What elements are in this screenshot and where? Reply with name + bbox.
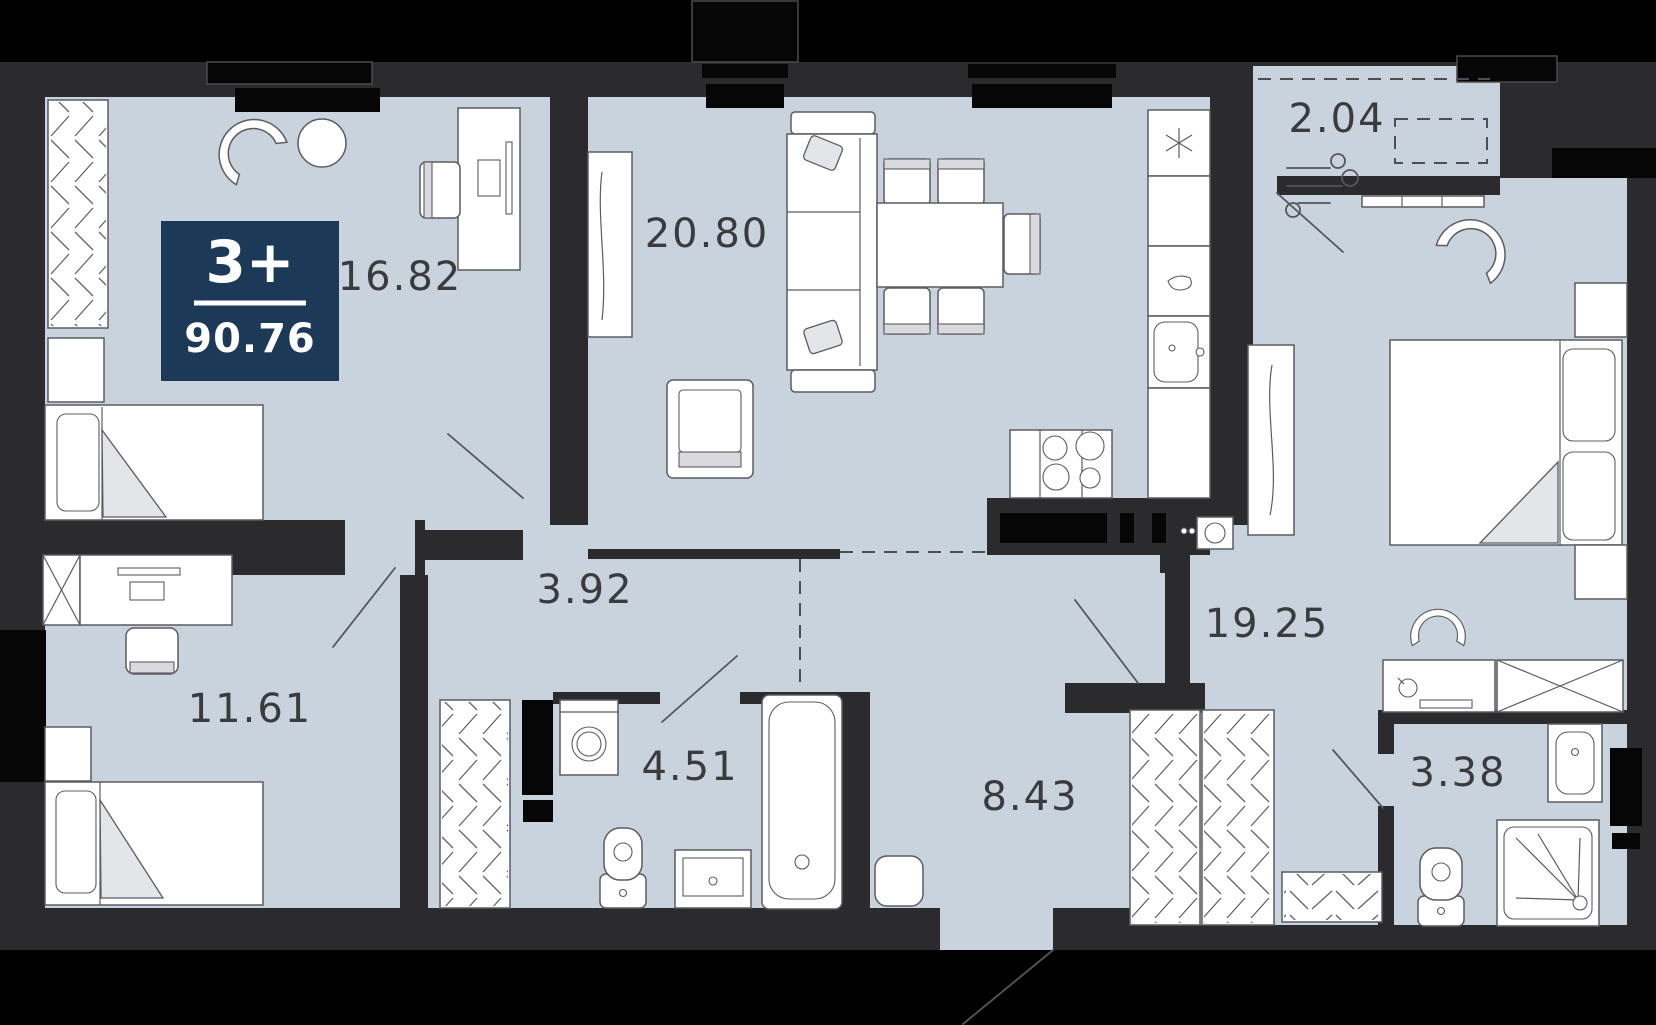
- stove-icon: [1010, 430, 1112, 498]
- room-area-label: 8.43: [981, 774, 1078, 820]
- closet-duct-a: [522, 700, 553, 795]
- closet-duct-b: [523, 800, 553, 822]
- shoe-rack-icon: [1282, 872, 1382, 922]
- desk-icon: [1383, 660, 1495, 712]
- window-living-a: [702, 64, 788, 78]
- room-area-label: 2.04: [1288, 96, 1385, 142]
- wardrobe-icon: [1130, 710, 1200, 925]
- vent-shaft-top: [692, 1, 798, 62]
- wardrobe-icon: [48, 100, 108, 328]
- vent-shaft-right-a: [1610, 748, 1642, 826]
- badge-total-area: 90.76: [184, 316, 316, 362]
- bed-icon: [45, 782, 263, 905]
- nightstand-icon: [45, 727, 91, 781]
- double-bed-icon: [1390, 340, 1622, 545]
- apartment-type-badge: 3+ 90.76: [161, 221, 339, 381]
- cabinet-x-icon: [43, 555, 80, 625]
- bed-icon: [45, 405, 263, 520]
- kitchen-sink-icon: [1148, 316, 1210, 388]
- room-area-label: 19.25: [1205, 601, 1330, 647]
- nightstand-icon: [1575, 283, 1627, 337]
- room-area-label: 11.61: [188, 686, 313, 732]
- window-room1-outer: [207, 62, 372, 84]
- room-area-label: 16.82: [338, 254, 463, 300]
- wall-shower-room-left-a: [1378, 724, 1394, 754]
- toilet-icon: [1418, 848, 1464, 926]
- kitchen-cabinet: [1148, 176, 1210, 246]
- vent-shaft-right-b: [1612, 833, 1640, 849]
- badge-rooms-label: 3+: [206, 228, 295, 296]
- bathtub-icon: [762, 695, 842, 909]
- washing-machine-icon: [560, 700, 618, 775]
- shower-icon: [1497, 820, 1599, 926]
- vanity-sink-icon: [675, 850, 751, 908]
- wall-hall-bedroom-h: [1065, 683, 1205, 713]
- floor-plan: 16.82 20.80 2.04 19.25 11.61 3.92 4.51 8…: [0, 0, 1656, 1025]
- entrance-opening: [940, 905, 1053, 950]
- kitchen-duct-a: [1000, 513, 1107, 543]
- wall-living-partition: [588, 549, 840, 559]
- wall-corridor-top: [425, 530, 523, 560]
- wall-room11-corridor: [400, 575, 428, 908]
- window-room1-sill: [235, 88, 380, 112]
- window-living-a-sill: [706, 84, 784, 108]
- nightstand-icon: [48, 338, 104, 402]
- wall-room1-room11-b: [415, 520, 425, 575]
- window-room11-left: [0, 630, 46, 782]
- window-balcony-top: [1457, 56, 1557, 82]
- vanity-sink-icon: [1548, 724, 1602, 802]
- kitchen-duct-b: [1120, 513, 1134, 543]
- window-bedroom-right: [1552, 148, 1656, 178]
- wardrobe-icon: [440, 700, 510, 908]
- floor-plan-svg: 16.82 20.80 2.04 19.25 11.61 3.92 4.51 8…: [0, 0, 1656, 1025]
- pouf-icon: [875, 856, 923, 906]
- kitchen-counter-lower: [1148, 388, 1210, 498]
- corridor-closet: [440, 700, 510, 908]
- room-area-label: 3.38: [1409, 750, 1506, 796]
- round-table-icon: [298, 119, 346, 167]
- tv-unit-icon: [588, 152, 632, 337]
- balcony-bench: [1362, 196, 1484, 207]
- room-area-label: 4.51: [641, 744, 738, 790]
- room-area-label: 3.92: [536, 567, 633, 613]
- sofa-icon: [787, 112, 877, 392]
- window-living-b-sill: [972, 84, 1112, 108]
- wall-room1-living: [550, 97, 588, 525]
- mirror-cabinet-icon: [1248, 345, 1294, 535]
- wall-bathroom-right: [840, 692, 870, 908]
- wall-kitchen-right: [1210, 97, 1253, 525]
- toilet-icon: [600, 828, 646, 908]
- window-living-b: [968, 64, 1116, 78]
- kitchen-duct-c: [1152, 513, 1166, 543]
- kettle-icon: [1148, 246, 1210, 316]
- room-area-label: 20.80: [645, 211, 770, 257]
- wardrobe-x-icon: [1497, 660, 1623, 712]
- armchair-icon: [667, 380, 753, 478]
- wardrobe-icon: [1202, 710, 1274, 925]
- nightstand-icon: [1575, 545, 1627, 599]
